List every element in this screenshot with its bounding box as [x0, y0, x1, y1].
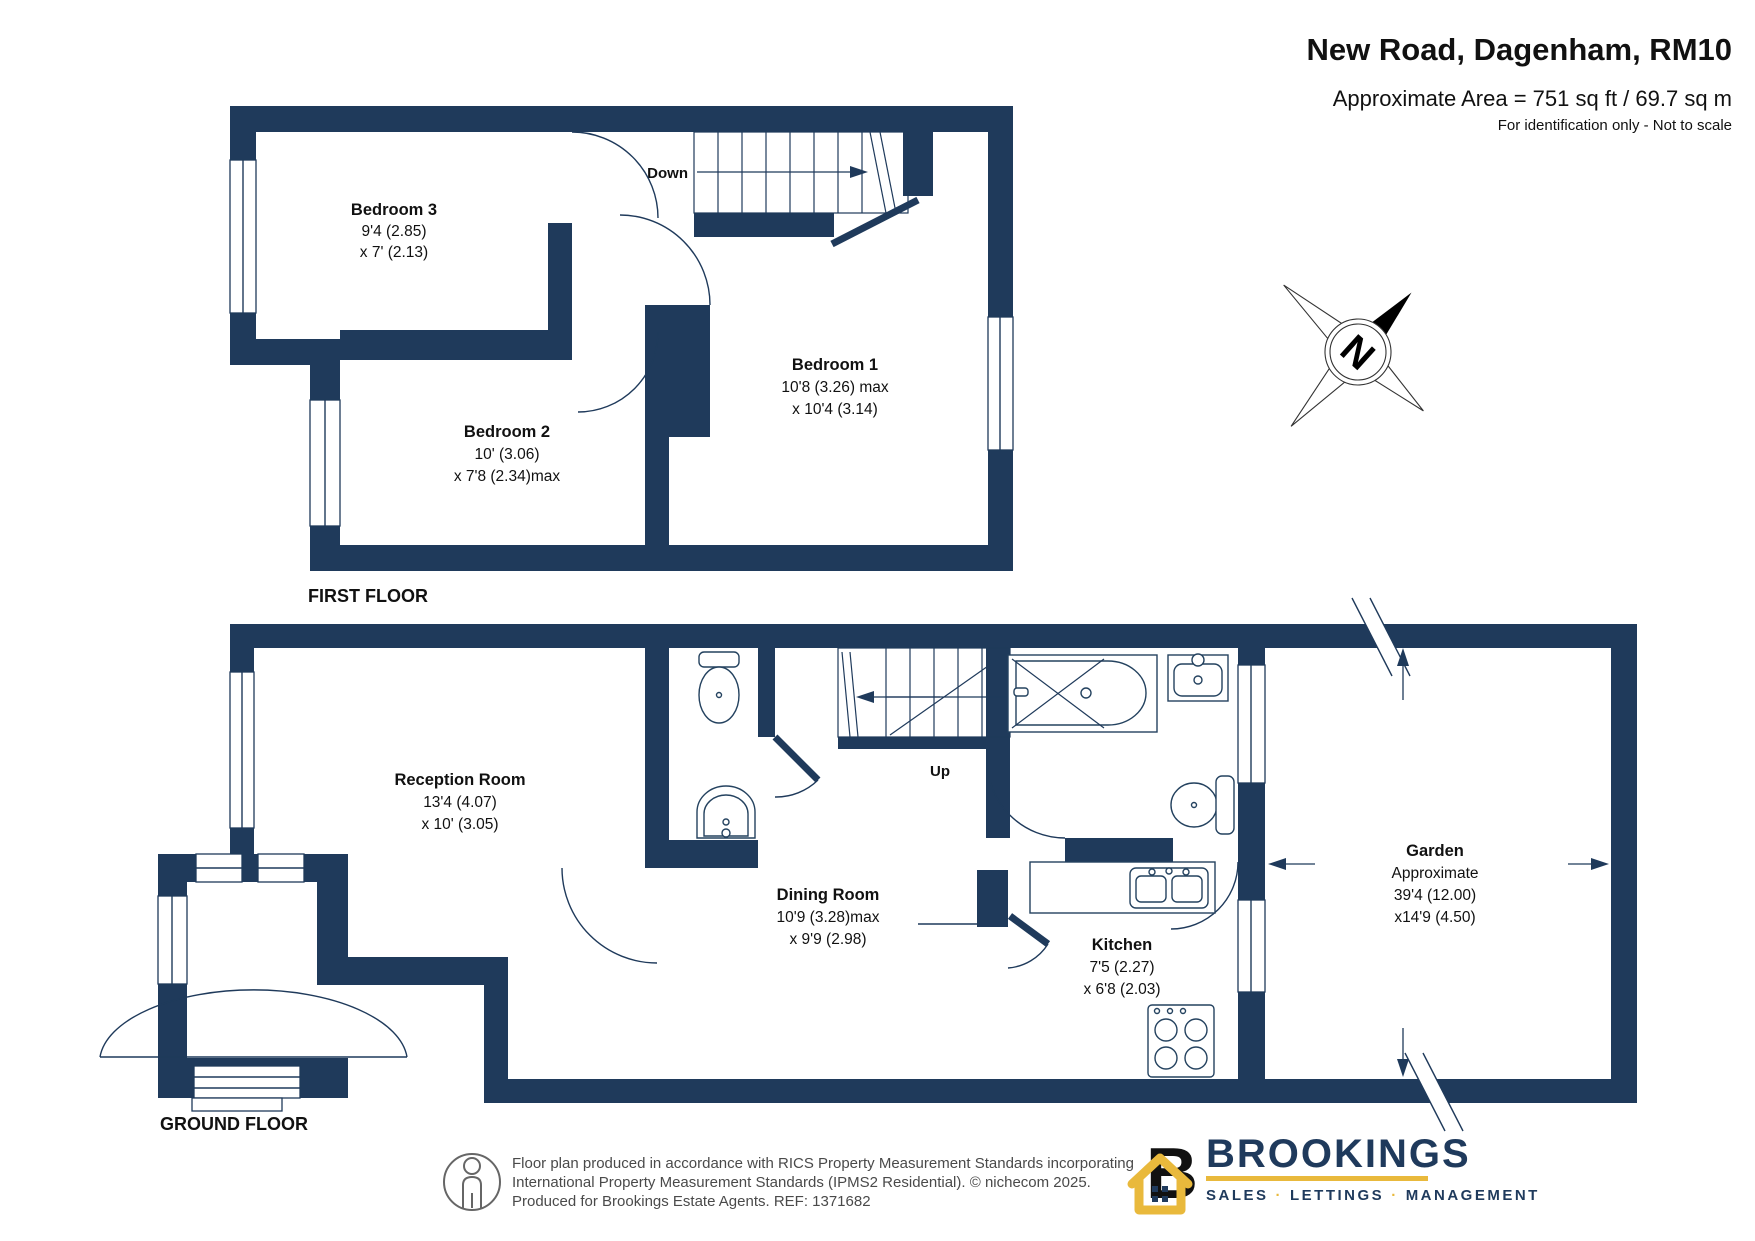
measure-arrow-left: [1268, 858, 1315, 870]
svg-text:x 6'8 (2.03): x 6'8 (2.03): [1083, 981, 1160, 998]
brand-tagline: SALES·LETTINGS·MANAGEMENT: [1206, 1187, 1540, 1204]
first-floor-label: FIRST FLOOR: [308, 586, 428, 606]
svg-text:10'9 (3.28)max: 10'9 (3.28)max: [777, 909, 880, 926]
compass-icon: N: [1217, 226, 1477, 486]
door-arc: [572, 132, 658, 218]
window-icon: [196, 854, 242, 882]
room-label-bedroom2: Bedroom 2: [464, 423, 550, 441]
sink-icon: [697, 786, 755, 838]
door-leaf: [775, 737, 818, 780]
window-icon: [1238, 665, 1265, 783]
door-arc: [1008, 944, 1048, 968]
svg-text:x 9'9 (2.98): x 9'9 (2.98): [789, 931, 866, 948]
kitchen-counter-sink-icon: [1030, 862, 1215, 913]
footer-line1: Floor plan produced in accordance with R…: [512, 1155, 1134, 1172]
door-leaf: [1010, 916, 1048, 944]
svg-text:x 7'8 (2.34)max: x 7'8 (2.34)max: [454, 468, 561, 485]
stairs-down-label: Down: [647, 165, 688, 182]
window-icon: [230, 672, 254, 828]
window-icon: [258, 854, 304, 882]
svg-text:10'8 (3.26) max: 10'8 (3.26) max: [781, 379, 888, 396]
footer-line2: International Property Measurement Stand…: [512, 1174, 1091, 1191]
svg-text:x14'9 (4.50): x14'9 (4.50): [1394, 909, 1475, 926]
scale-note: For identification only - Not to scale: [1498, 117, 1732, 134]
staircase-down: Down: [647, 132, 908, 213]
room-label-reception: Reception Room: [394, 771, 525, 789]
brand-rule: [1206, 1176, 1428, 1181]
header: New Road, Dagenham, RM10 Approximate Are…: [1307, 32, 1732, 134]
front-step: [192, 1098, 282, 1111]
window-icon: [988, 317, 1013, 450]
window-icon: [230, 160, 256, 313]
svg-text:7'5 (2.27): 7'5 (2.27): [1090, 959, 1155, 976]
svg-text:x 10' (3.05): x 10' (3.05): [421, 816, 498, 833]
door-leaf: [832, 200, 918, 244]
footer: Floor plan produced in accordance with R…: [444, 1154, 1134, 1210]
staircase-up: Up: [838, 648, 1010, 780]
stairs-up-arrow: [856, 691, 874, 703]
room-label-bedroom3: Bedroom 3: [351, 201, 437, 219]
room-label-dining: Dining Room: [777, 886, 880, 904]
footer-line3: Produced for Brookings Estate Agents. RE…: [512, 1193, 871, 1210]
toilet-icon: [699, 652, 739, 723]
svg-text:39'4 (12.00): 39'4 (12.00): [1394, 887, 1476, 904]
cloakroom-fixtures: [697, 652, 755, 838]
svg-text:13'4 (4.07): 13'4 (4.07): [423, 794, 497, 811]
area-subtitle: Approximate Area = 751 sq ft / 69.7 sq m: [1333, 86, 1732, 111]
page-title: New Road, Dagenham, RM10: [1307, 32, 1732, 67]
room-label-garden: Garden: [1406, 842, 1464, 860]
stairs-down-arrow: [850, 166, 868, 178]
measure-arrow-right: [1568, 858, 1609, 870]
window-icon: [194, 1066, 300, 1098]
svg-text:10' (3.06): 10' (3.06): [475, 446, 540, 463]
room-label-kitchen: Kitchen: [1092, 936, 1153, 954]
bathtub-icon: [1008, 655, 1157, 732]
window-icon: [1238, 900, 1265, 992]
stairs-up-label: Up: [930, 763, 950, 780]
measure-arrow-down: [1397, 1028, 1409, 1077]
ground-floor-plan: Up: [100, 598, 1637, 1134]
ground-floor-label: GROUND FLOOR: [160, 1114, 308, 1134]
brookings-logo: B BROOKINGS SALES·LETTINGS·MANAGEMENT: [1132, 1132, 1540, 1214]
svg-text:9'4 (2.85): 9'4 (2.85): [362, 223, 427, 240]
svg-text:x 10'4 (3.14): x 10'4 (3.14): [792, 401, 878, 418]
door-arc: [562, 868, 657, 963]
toilet-icon: [1171, 776, 1234, 834]
person-icon: [444, 1154, 500, 1210]
floorplan-canvas: New Road, Dagenham, RM10 Approximate Are…: [0, 0, 1755, 1241]
brand-name: BROOKINGS: [1206, 1132, 1471, 1176]
window-icon: [310, 400, 340, 526]
ground-floor-walls: [158, 624, 1637, 1103]
brookings-logo-icon: B: [1132, 1134, 1198, 1214]
bathroom-fixtures: [1008, 654, 1234, 834]
window-icon: [158, 896, 187, 984]
first-floor-walls: [230, 106, 1013, 571]
floorplan-page: New Road, Dagenham, RM10 Approximate Are…: [0, 0, 1755, 1241]
svg-text:Approximate: Approximate: [1391, 865, 1478, 882]
room-label-bedroom1: Bedroom 1: [792, 356, 878, 374]
sink-icon: [1168, 654, 1228, 701]
hob-icon: [1148, 1005, 1214, 1077]
door-arc: [775, 780, 818, 797]
first-floor-plan: Down Bedroom 3 9'4 (2.85) x 7' (2.13) Be…: [230, 106, 1013, 606]
svg-text:x 7' (2.13): x 7' (2.13): [360, 244, 428, 261]
